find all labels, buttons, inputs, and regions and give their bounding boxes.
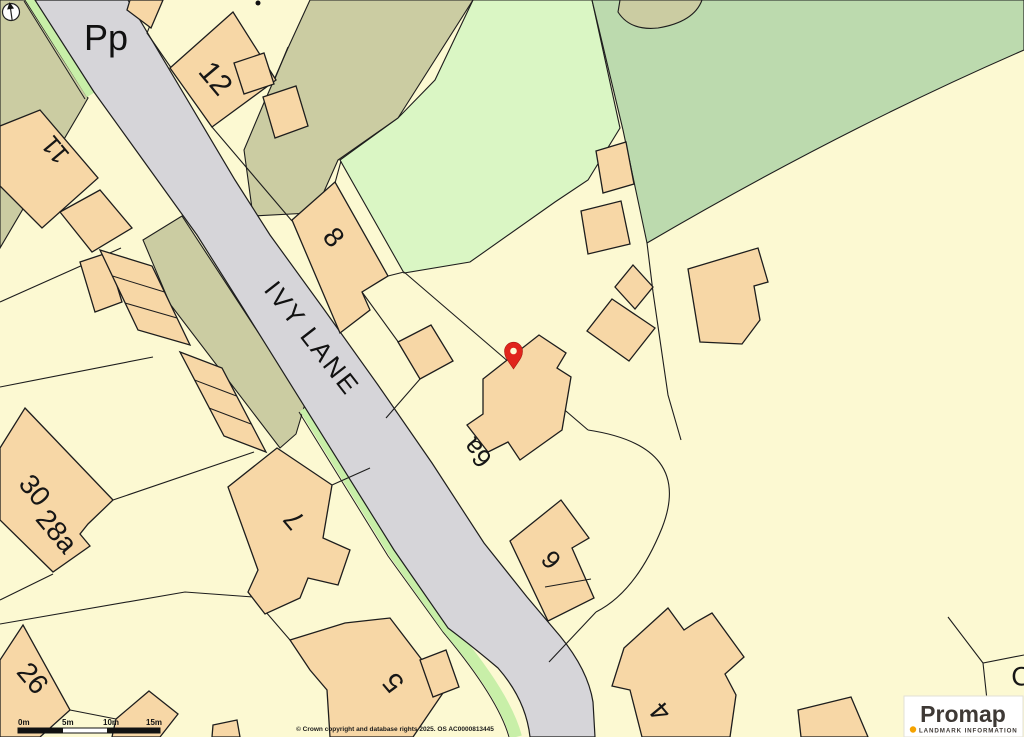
- logo-brand-text: Promap: [920, 701, 1006, 727]
- promap-logo: Promap LANDMARK INFORMATION: [904, 696, 1023, 737]
- scale-bar-segment: [18, 728, 63, 733]
- partial-edge-label: C: [1011, 661, 1024, 691]
- map-canvas[interactable]: Pp IVY LANE 12 11 8 30 28a 26 7 5 6a 6 4…: [0, 0, 1024, 737]
- scale-tick-label: 10m: [103, 718, 119, 727]
- map-dot: [256, 1, 261, 6]
- scale-bar-segment: [107, 728, 160, 733]
- logo-dot-icon: [910, 726, 916, 732]
- logo-tagline-text: LANDMARK INFORMATION: [919, 728, 1018, 735]
- scale-tick-label: 0m: [18, 718, 30, 727]
- building: [581, 201, 630, 254]
- scale-tick-label: 15m: [146, 718, 162, 727]
- copyright-notice: © Crown copyright and database rights 20…: [296, 725, 494, 733]
- area-label: Pp: [84, 17, 128, 58]
- scale-tick-label: 5m: [62, 718, 74, 727]
